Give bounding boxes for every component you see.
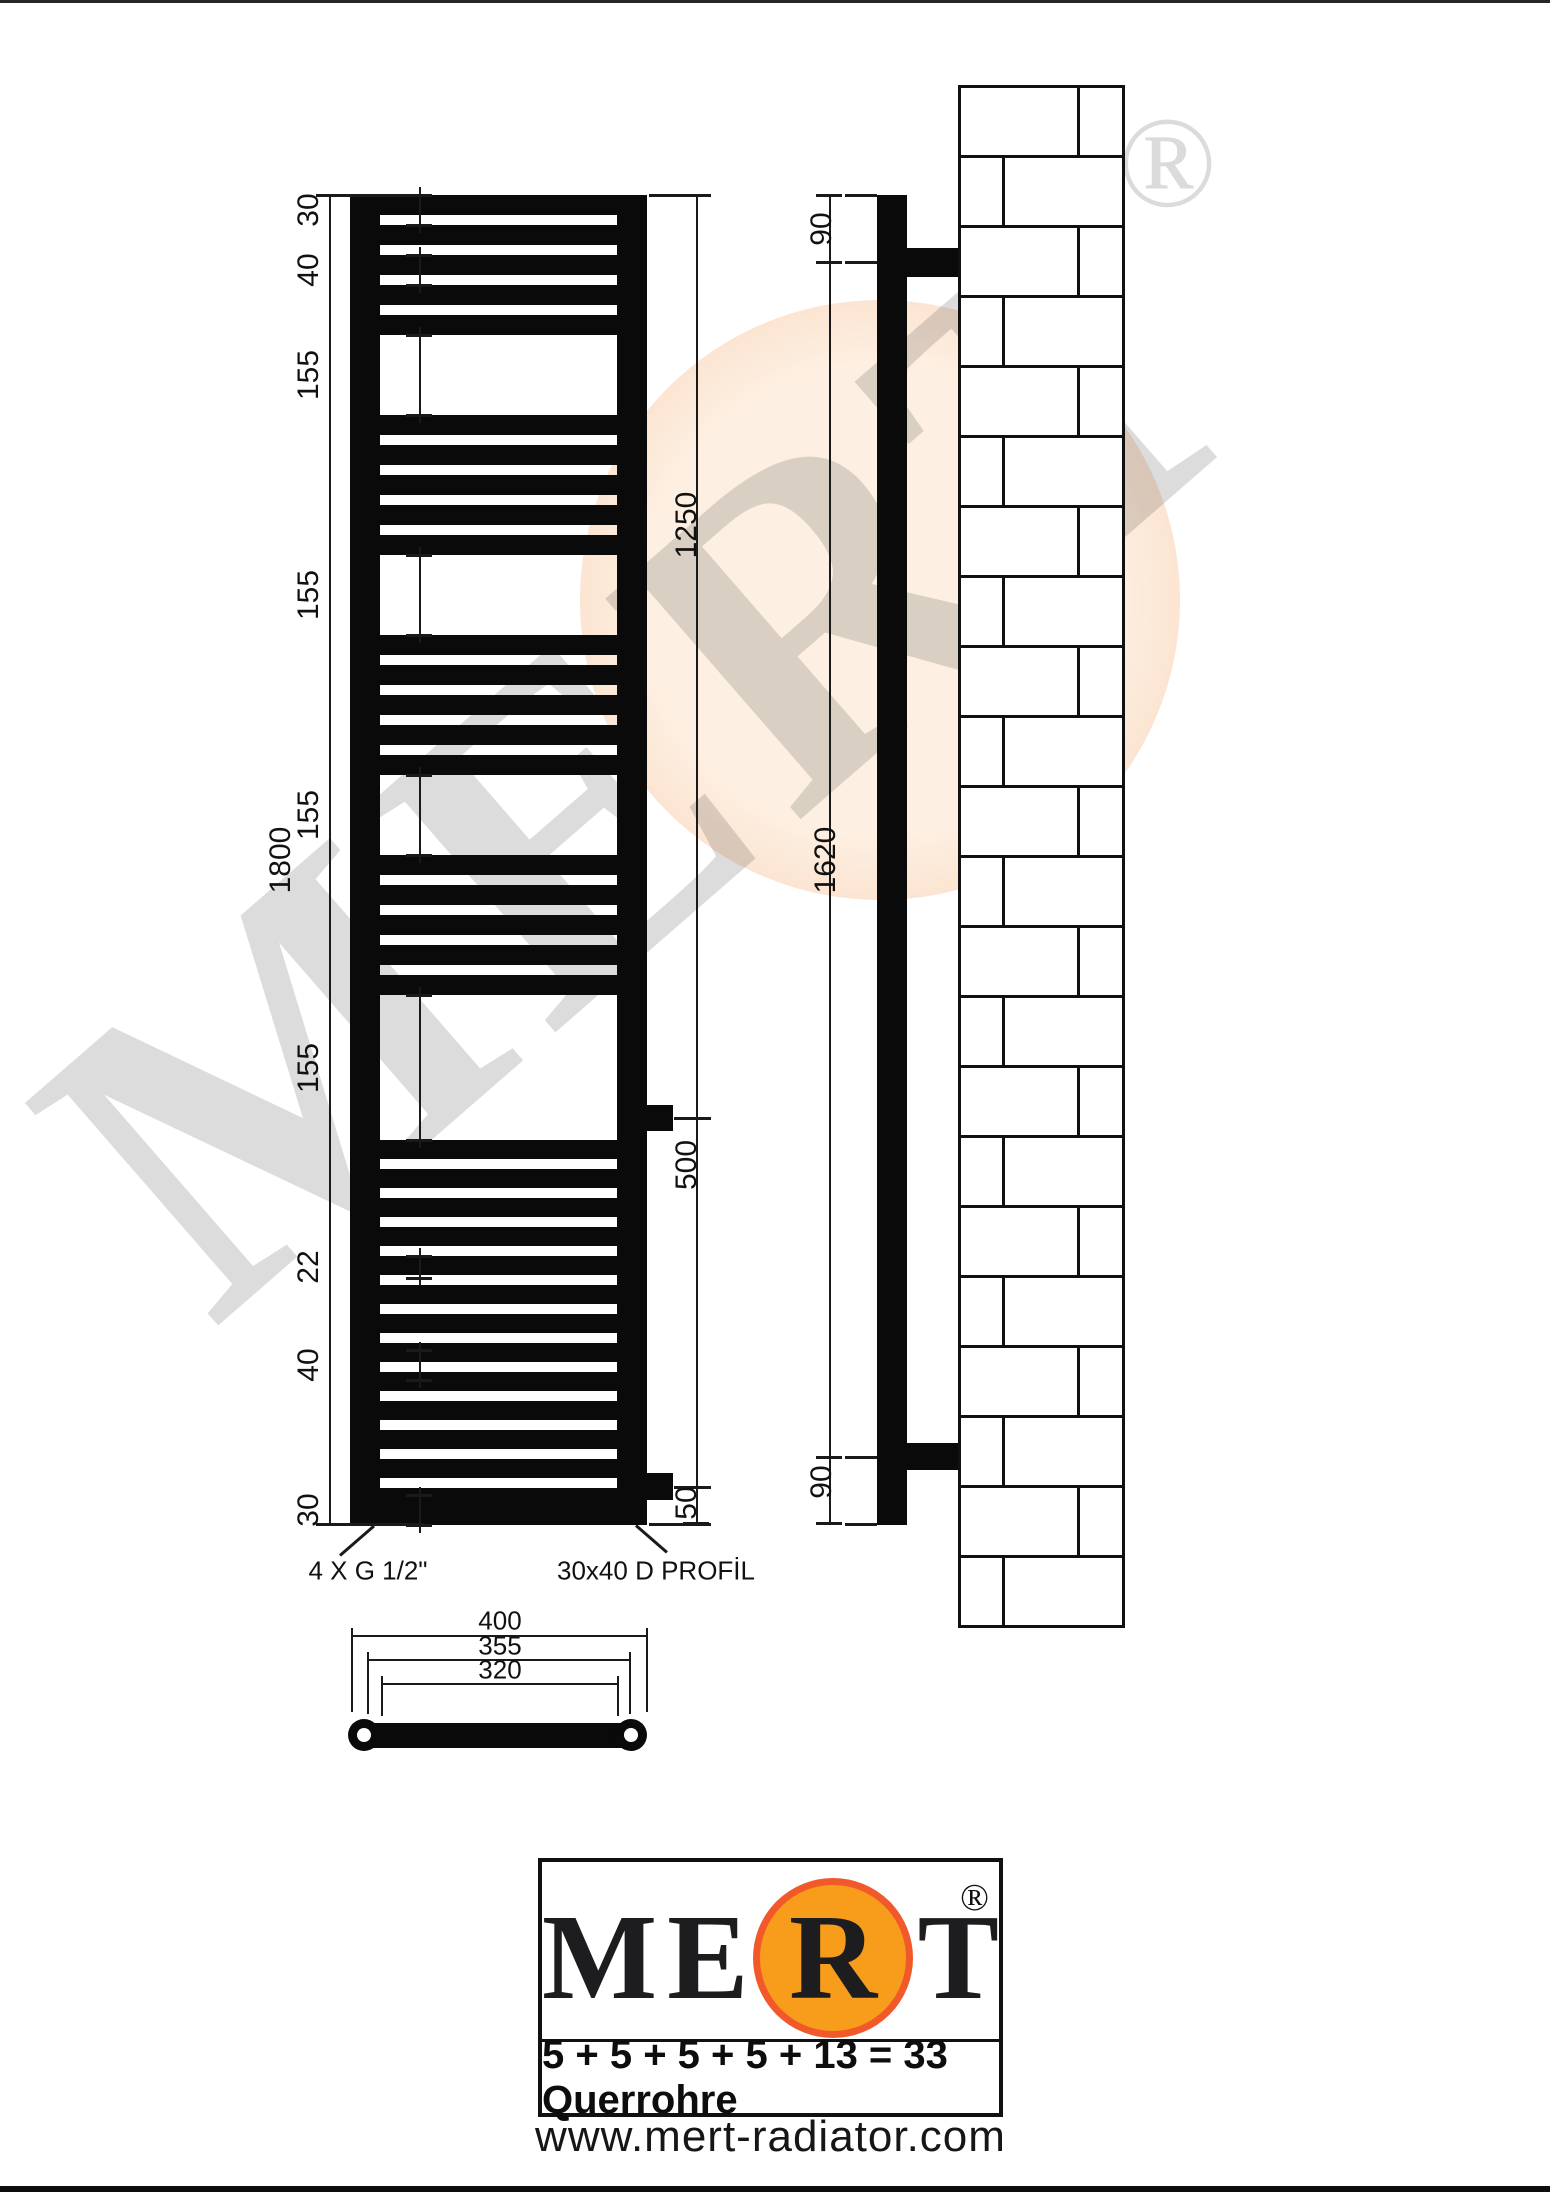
brick-row [958,225,1125,298]
radiator-tube [380,285,617,305]
radiator-tube-dense [380,1314,617,1333]
brick-joint [1077,788,1080,855]
dim-label-top-30: 30 [292,193,326,226]
dimension-line [329,195,331,1525]
brick-joint [1002,578,1005,645]
radiator-tube-dense [380,1227,617,1246]
radiator-tube-dense [380,1401,617,1420]
side-profile-bar [877,195,907,1525]
dimension-line [406,1524,432,1527]
brick-joint [1002,1278,1005,1345]
dimension-line [696,195,698,1525]
dimension-line [419,1248,421,1286]
dim-label-width-320: 320 [478,1655,521,1686]
dimension-line [406,554,432,557]
dimension-line [674,1117,711,1120]
brick-joint [1077,228,1080,295]
profile-cap-hole-right [624,1728,638,1742]
brick-joint [1002,158,1005,225]
radiator-tube [380,725,617,745]
brick-row [958,1275,1125,1348]
brick-joint [1077,1068,1080,1135]
dimension-line [845,194,877,197]
dimension-line [845,261,877,264]
dim-label-side-90-top: 90 [805,212,839,245]
brick-row [958,1135,1125,1208]
annotation-connections: 4 X G 1/2" [308,1556,427,1587]
dimension-line [419,987,421,1148]
watermark-registered-icon: ® [1118,88,1217,238]
dim-label-gap3-155: 155 [292,790,326,840]
brick-joint [1077,368,1080,435]
radiator-tube [380,445,617,465]
dimension-line [406,1139,432,1142]
radiator-tube-dense [380,1343,617,1362]
radiator-tube [380,475,617,495]
dimension-line [419,547,421,643]
dim-label-22: 22 [292,1250,326,1283]
brick-joint [1077,1488,1080,1555]
brick-joint [1077,648,1080,715]
brick-row [958,715,1125,788]
radiator-tube [380,695,617,715]
radiator-tube [380,885,617,905]
dimension-line [816,194,842,197]
brick-row [958,1205,1125,1278]
brick-row [958,505,1125,578]
dimension-line [816,261,842,264]
radiator-tube [380,665,617,685]
brick-row [958,1485,1125,1558]
logo-letter-t: T [918,1888,999,2028]
dimension-line [406,994,432,997]
bottom-border [0,2186,1550,2192]
website-url: www.mert-radiator.com [518,2112,1023,2162]
brick-row [958,1415,1125,1488]
leader-line-connections [339,1525,375,1557]
brick-joint [1002,718,1005,785]
radiator-tube [380,975,617,995]
brick-joint [1002,298,1005,365]
brick-row [958,925,1125,998]
brick-row [958,855,1125,928]
mid-connector [647,1105,673,1131]
profile-cap-hole-left [357,1728,371,1742]
dimension-line [406,224,432,227]
radiator-tube-dense [380,1459,617,1478]
logo-brand-letters: M E R T [542,1878,999,2038]
brick-joint [1077,928,1080,995]
brick-row [958,1345,1125,1418]
dimension-line [406,1277,432,1280]
radiator-tube-dense [380,1488,617,1507]
brick-row [958,645,1125,718]
dimension-line [649,1523,711,1526]
dim-label-top-40: 40 [292,253,326,286]
dim-label-gap2-155: 155 [292,570,326,620]
logo-letter-e: E [667,1888,748,2028]
dimension-line [351,1628,353,1712]
dim-label-bottom-40: 40 [292,1348,326,1381]
front-left-column [350,195,380,1525]
brick-joint [1002,1418,1005,1485]
dimension-line [406,254,432,257]
brick-row [958,785,1125,858]
radiator-tube [380,535,617,555]
brick-row [958,995,1125,1068]
brick-joint [1002,1558,1005,1625]
dimension-line [649,194,711,197]
annotation-profile: 30x40 D PROFİL [557,1556,755,1587]
radiator-tube-dense [380,1140,617,1159]
radiator-tube-dense [380,1198,617,1217]
brick-row [958,1065,1125,1138]
radiator-tube [380,415,617,435]
dim-label-1250: 1250 [670,492,704,559]
radiator-tube [380,225,617,245]
dimension-line [419,767,421,863]
dim-label-side-90-bottom: 90 [805,1465,839,1498]
dimension-line [406,1349,432,1352]
dimension-line [816,1522,842,1525]
dimension-line [406,334,432,337]
dimension-line [406,284,432,287]
dim-label-side-1620: 1620 [809,827,843,894]
radiator-tube-dense [380,1430,617,1449]
radiator-tube-dense [380,1285,617,1304]
brick-row [958,85,1125,158]
dimension-line [406,1379,432,1382]
dimension-line [406,1255,432,1258]
brick-row [958,1555,1125,1628]
dim-label-gap1-155: 155 [292,350,326,400]
logo-letter-r: R [789,1888,877,2028]
mert-logo: ® M E R T 5 + 5 + 5 + 5 + 13 = 33 Querro… [538,1858,1003,2117]
radiator-tube [380,755,617,775]
brick-joint [1002,438,1005,505]
dimension-line [845,1456,877,1459]
brick-row [958,155,1125,228]
dimension-line [646,1628,648,1712]
radiator-tube [380,855,617,875]
dimension-line [406,414,432,417]
brick-row [958,575,1125,648]
wall-bracket-top [907,248,958,277]
brick-joint [1077,1348,1080,1415]
brick-joint [1077,88,1080,155]
dim-label-bottom-30: 30 [292,1493,326,1526]
radiator-tube [380,915,617,935]
radiator-tube [380,315,617,335]
radiator-tube [380,635,617,655]
dim-label-50: 50 [670,1486,704,1519]
logo-letter-m: M [542,1888,657,2028]
brick-joint [1077,1208,1080,1275]
dimension-line [406,854,432,857]
radiator-tube [380,195,617,215]
dimension-line [617,1676,619,1716]
dimension-line [381,1676,383,1716]
profile-top-view-bar [363,1723,634,1748]
dimension-line [367,1652,369,1714]
dimension-line [406,634,432,637]
brick-joint [1002,1138,1005,1205]
logo-letter-r-wrap: R [759,1883,908,2033]
dim-label-gap4-155: 155 [292,1043,326,1093]
top-border [0,0,1550,3]
technical-drawing-page: MERT ® 1800 30 40 155 155 155 155 22 40 … [0,0,1550,2192]
wall-bracket-bottom [907,1443,958,1470]
dimension-line [816,1456,842,1459]
radiator-tube [380,505,617,525]
radiator-tube [380,945,617,965]
dimension-line [406,1494,432,1497]
radiator-tube-dense [380,1169,617,1188]
brick-joint [1077,508,1080,575]
brick-joint [1002,858,1005,925]
front-right-column [617,195,647,1525]
radiator-tube [380,255,617,275]
brick-joint [1002,998,1005,1065]
dimension-line [406,194,432,197]
radiator-tube-dense [380,1256,617,1275]
brick-row [958,435,1125,508]
brick-row [958,365,1125,438]
dim-label-500: 500 [670,1140,704,1190]
dimension-line [406,774,432,777]
dimension-line [845,1523,877,1526]
dimension-line [419,327,421,423]
dimension-line [629,1652,631,1714]
tube-formula: 5 + 5 + 5 + 5 + 13 = 33 Querrohre [542,2042,999,2114]
brick-row [958,295,1125,368]
leader-line-profile [635,1524,668,1553]
